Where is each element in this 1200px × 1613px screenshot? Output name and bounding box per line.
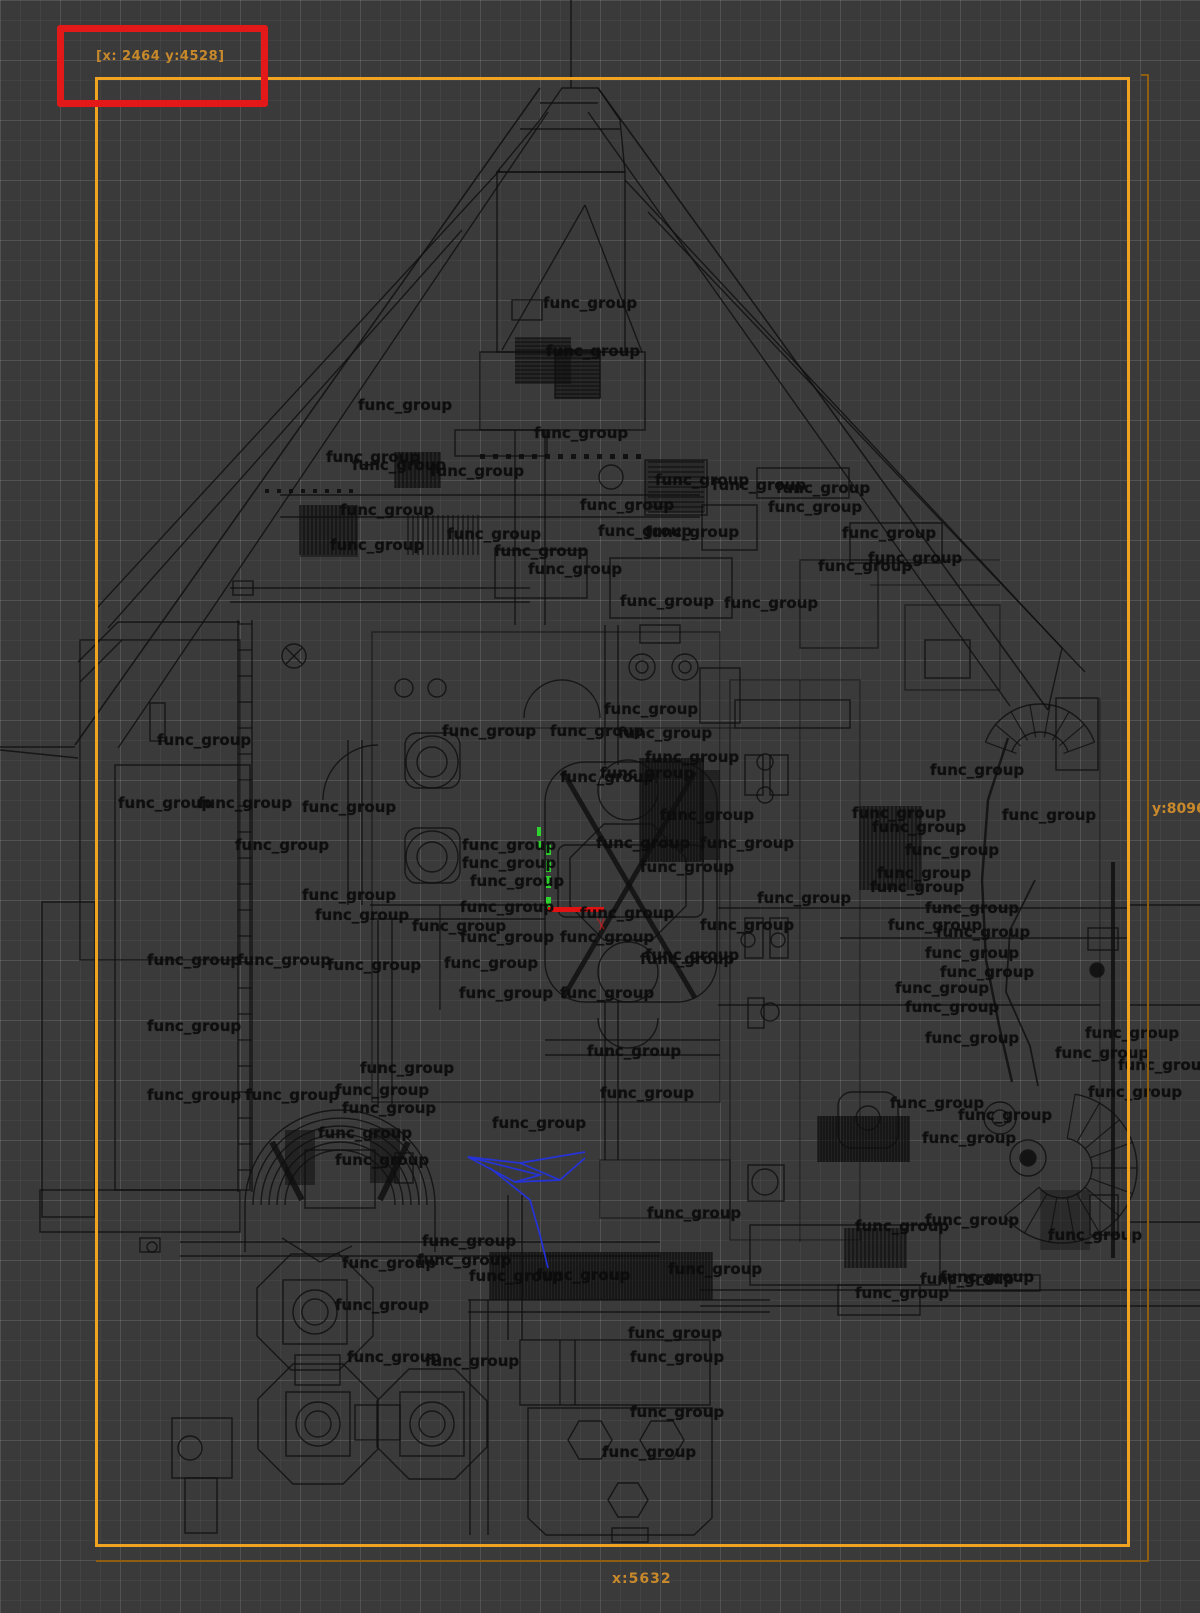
map-2d-viewport[interactable]: func_groupfunc_groupfunc_groupfunc_group… [0, 0, 1200, 1613]
selection-bounds-box[interactable] [95, 77, 1130, 1547]
selection-width-label: x:5632 [612, 1571, 672, 1587]
selection-height-label: y:8096 [1152, 801, 1200, 817]
selection-outer-notch [1141, 74, 1149, 76]
annotation-highlight-box [57, 25, 268, 107]
